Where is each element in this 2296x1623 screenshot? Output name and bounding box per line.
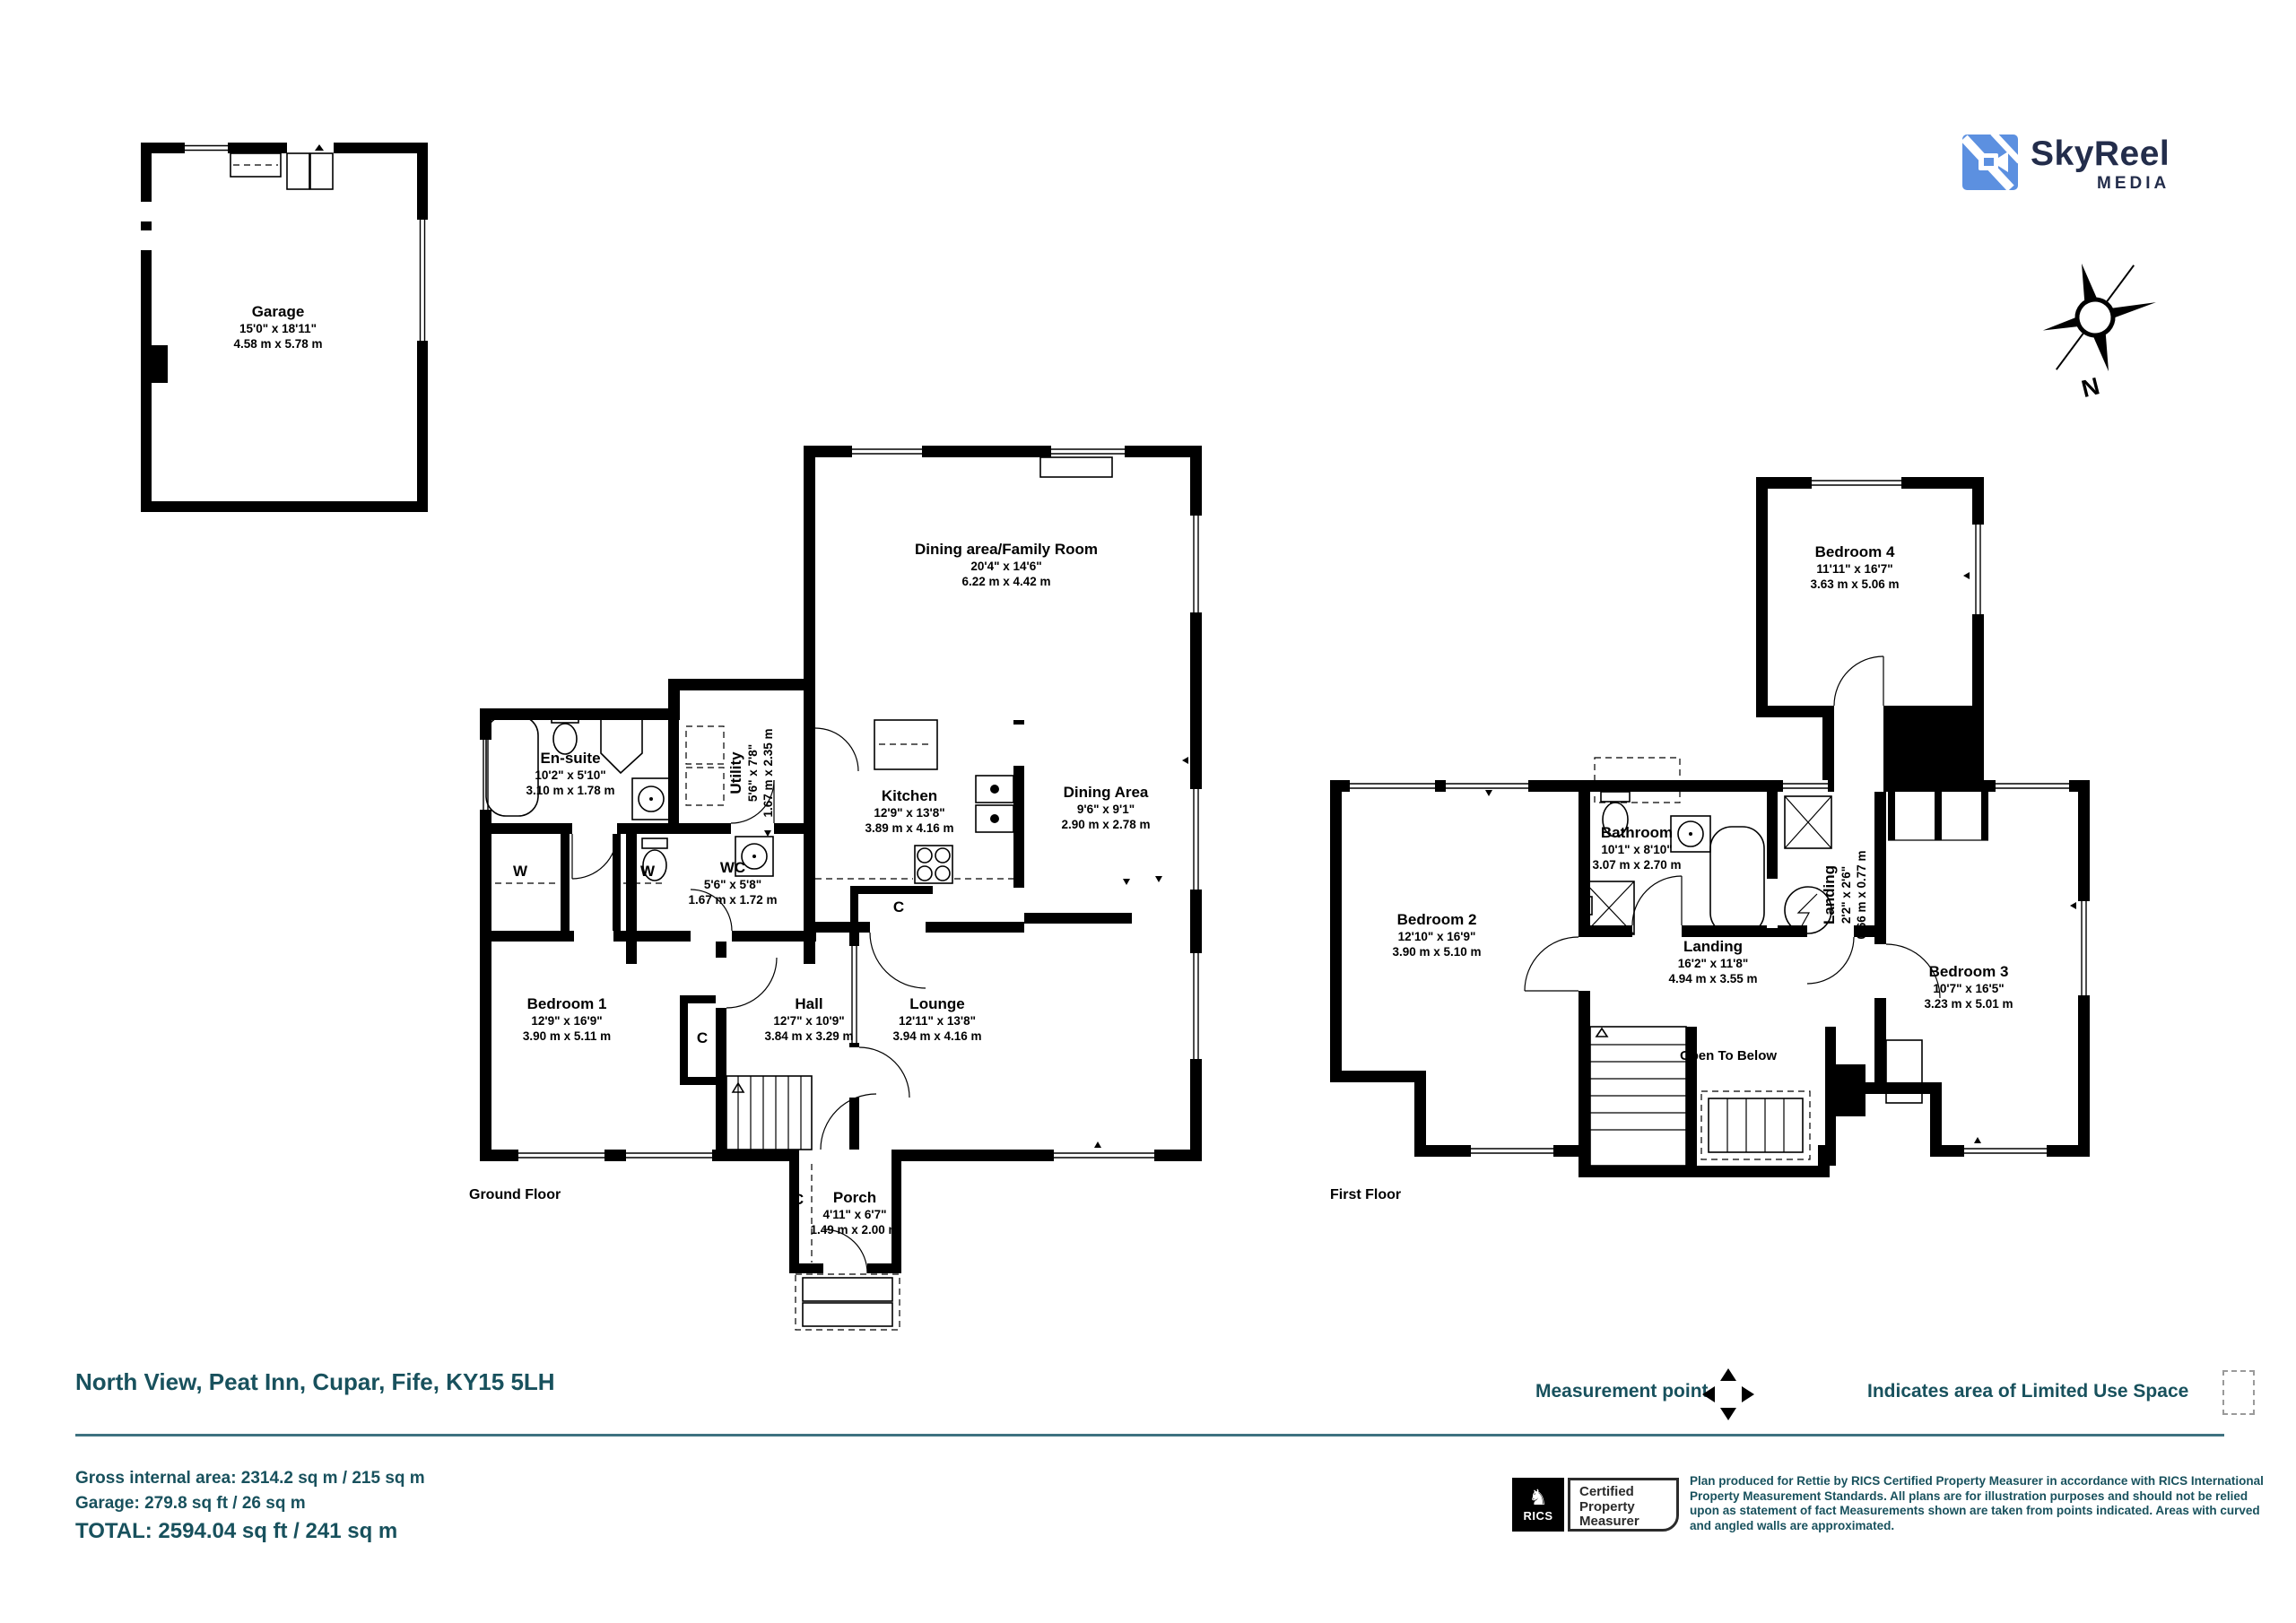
bedroom2-label: Bedroom 2 12'10" x 16'9" 3.90 m x 5.10 m: [1392, 911, 1481, 959]
dining-family-room-label: Dining area/Family Room 20'4" x 14'6" 6.…: [915, 541, 1098, 589]
gross-area-text: Gross internal area: 2314.2 sq m / 215 s…: [75, 1469, 425, 1488]
certified-line-2: Property: [1579, 1500, 1676, 1515]
skyreel-logo: SkyReel MEDIA: [1962, 135, 2170, 194]
utility-label: Utility 5'6" x 7'8" 1.67 m x 2.35 m: [727, 728, 776, 817]
limited-use-swatch: [2222, 1370, 2255, 1415]
measurement-point-label: Measurement point: [1535, 1381, 1709, 1402]
total-area-text: TOTAL: 2594.04 sq ft / 241 sq m: [75, 1519, 397, 1544]
property-address: North View, Peat Inn, Cupar, Fife, KY15 …: [75, 1368, 555, 1396]
first-floor-plan: [1309, 457, 2108, 1228]
skyreel-logo-icon: [1962, 135, 2018, 190]
compass-north-label: N: [2079, 372, 2102, 403]
footer-divider: [75, 1434, 2224, 1436]
landing-small-label: Landing 2'2" x 2'6" 0.66 m x 0.77 m: [1821, 850, 1869, 939]
bedroom1-label: Bedroom 1 12'9" x 16'9" 3.90 m x 5.11 m: [523, 995, 611, 1044]
porch-label: Porch 4'11" x 6'7" 1.49 m x 2.00 m: [810, 1189, 899, 1237]
rics-logo: ♞ RICS: [1512, 1478, 1564, 1532]
certified-line-1: Certified: [1579, 1485, 1676, 1500]
cupboard-letter-porch: C: [793, 1191, 804, 1209]
certified-line-3: Measurer: [1579, 1515, 1676, 1530]
dining-area-label: Dining Area 9'6" x 9'1" 2.90 m x 2.78 m: [1061, 784, 1150, 832]
garage-area-text: Garage: 279.8 sq ft / 26 sq m: [75, 1494, 306, 1514]
wc-label: WC 5'6" x 5'8" 1.67 m x 1.72 m: [688, 859, 777, 907]
disclaimer-text: Plan produced for Rettie by RICS Certifi…: [1690, 1474, 2280, 1533]
bedroom3-label: Bedroom 3 10'7" x 16'5" 3.23 m x 5.01 m: [1924, 963, 2013, 1011]
ground-floor-label: Ground Floor: [469, 1187, 561, 1203]
kitchen-label: Kitchen 12'9" x 13'8" 3.89 m x 4.16 m: [865, 787, 953, 836]
first-floor-label: First Floor: [1330, 1187, 1401, 1203]
bathroom-label: Bathroom 10'1" x 8'10" 3.07 m x 2.70 m: [1592, 824, 1681, 872]
cupboard-letter-kitchen: C: [893, 898, 904, 916]
lounge-label: Lounge 12'11" x 13'8" 3.94 m x 4.16 m: [892, 995, 981, 1044]
logo-brand-text: SkyReel: [2031, 135, 2170, 174]
measurement-point-icon: [1702, 1368, 1754, 1420]
rics-lion-icon: ♞: [1528, 1488, 1548, 1509]
cupboard-letter-hall: C: [697, 1029, 708, 1047]
wardrobe-letter-2: W: [640, 863, 655, 881]
logo-sub-text: MEDIA: [2097, 174, 2170, 194]
bedroom4-label: Bedroom 4 11'11" x 16'7" 3.63 m x 5.06 m: [1810, 543, 1899, 592]
hall-label: Hall 12'7" x 10'9" 3.84 m x 3.29 m: [764, 995, 853, 1044]
ensuite-label: En-suite 10'2" x 5'10" 3.10 m x 1.78 m: [526, 750, 614, 798]
certified-measurer-badge: Certified Property Measurer: [1568, 1478, 1679, 1532]
compass-rose: N: [2018, 260, 2179, 408]
wardrobe-letter-1: W: [513, 863, 527, 881]
garage-label: Garage 15'0" x 18'11" 4.58 m x 5.78 m: [233, 303, 322, 352]
landing-label: Landing 16'2" x 11'8" 4.94 m x 3.55 m: [1668, 938, 1757, 986]
open-to-below-label: Open To Below: [1680, 1047, 1777, 1065]
rics-abbr-text: RICS: [1523, 1510, 1552, 1522]
floor-plan-page: N SkyReel MEDIA Garage 15'0" x 18'11" 4.…: [0, 0, 2296, 1623]
limited-use-label: Indicates area of Limited Use Space: [1867, 1381, 2188, 1402]
